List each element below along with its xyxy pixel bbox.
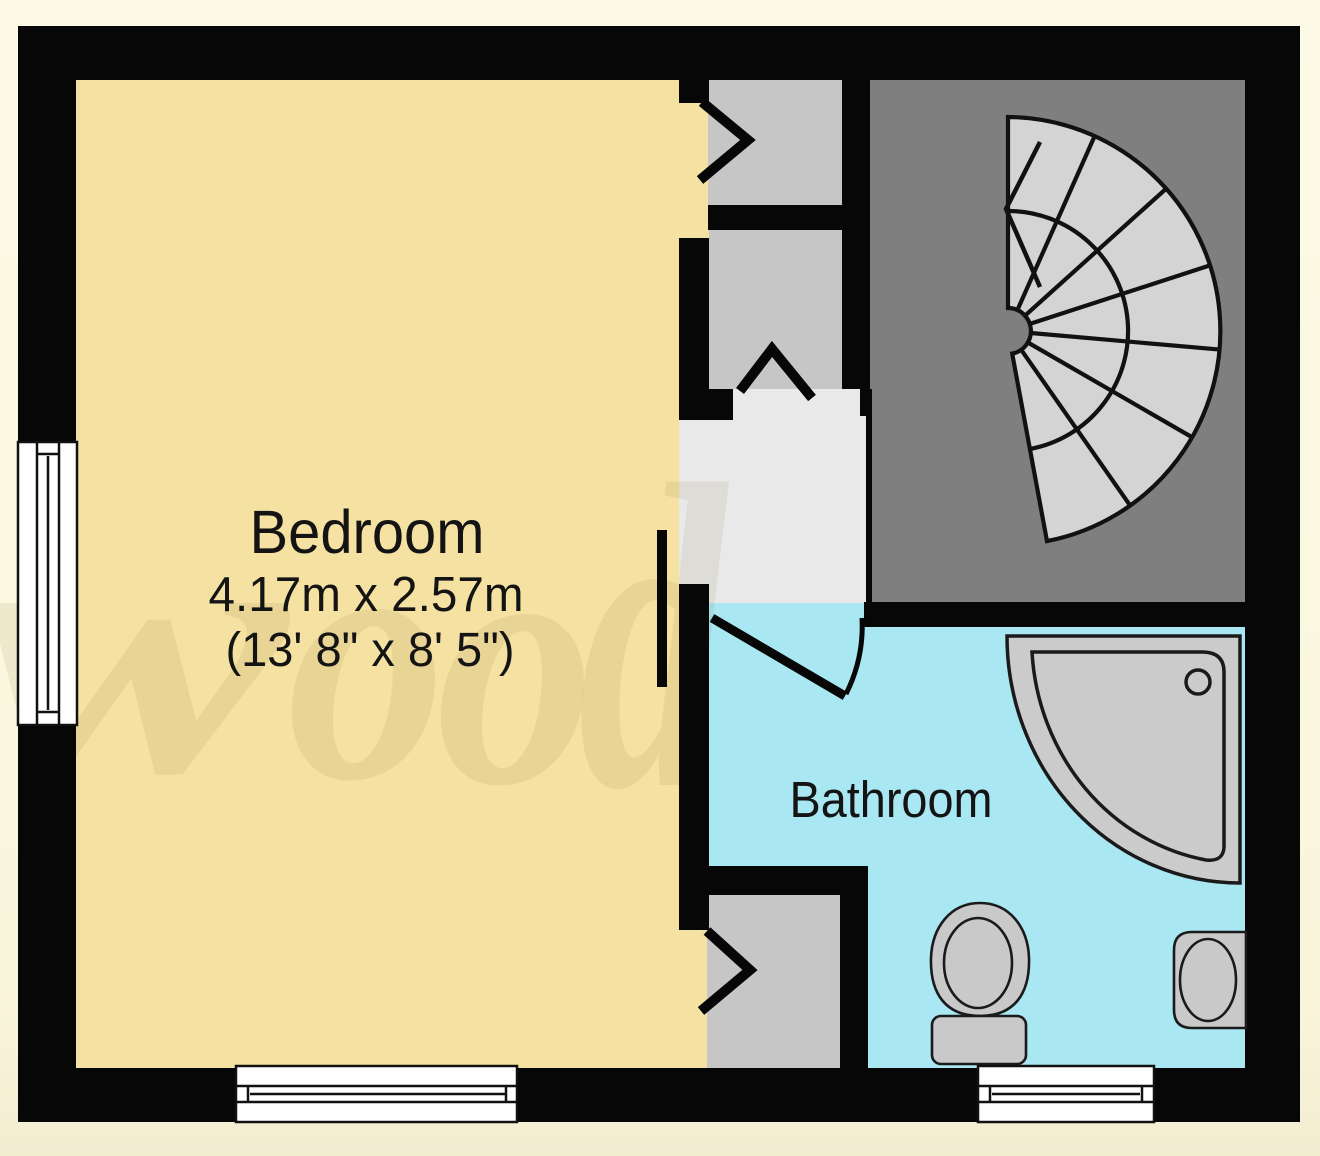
svg-text:Bedroom: Bedroom — [250, 498, 485, 566]
svg-text:(13' 8" x 8' 5"): (13' 8" x 8' 5") — [226, 624, 515, 677]
svg-text:4.17m x 2.57m: 4.17m x 2.57m — [209, 568, 524, 622]
svg-text:Bathroom: Bathroom — [790, 771, 993, 828]
